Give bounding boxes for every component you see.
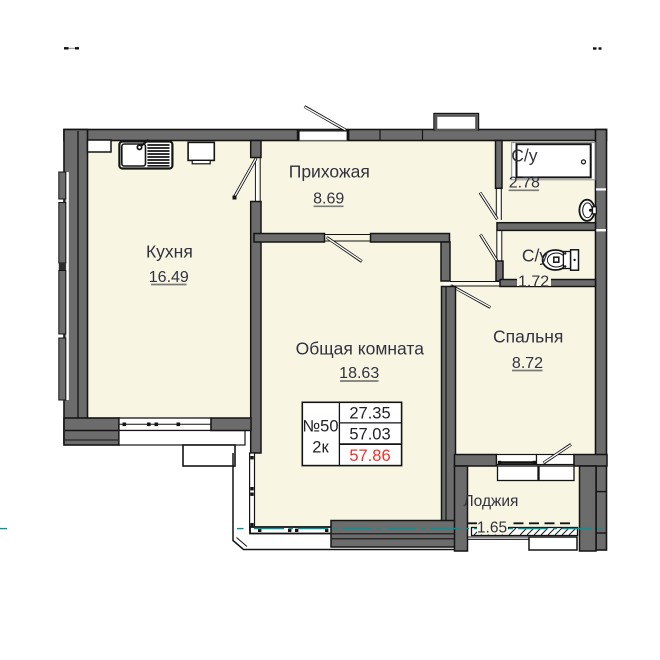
svg-text:18.63: 18.63 — [339, 365, 379, 382]
svg-text:2к: 2к — [312, 439, 329, 457]
svg-text:Прихожая: Прихожая — [289, 162, 370, 182]
svg-text:2.78: 2.78 — [509, 175, 540, 192]
svg-text:8.72: 8.72 — [512, 355, 543, 372]
svg-text:Кухня: Кухня — [146, 242, 193, 262]
svg-text:Спальня: Спальня — [493, 327, 563, 347]
svg-text:С/у: С/у — [522, 246, 549, 266]
svg-text:57.86: 57.86 — [349, 447, 390, 465]
svg-text:57.03: 57.03 — [349, 426, 390, 444]
svg-text:С/у: С/у — [511, 146, 538, 166]
svg-text:№50: №50 — [302, 418, 338, 436]
svg-text:8.69: 8.69 — [313, 191, 344, 208]
svg-text:Лоджия: Лоджия — [464, 493, 519, 510]
svg-text:16.49: 16.49 — [149, 269, 189, 286]
svg-text:1.72: 1.72 — [518, 274, 549, 291]
svg-text:Общая комната: Общая комната — [296, 338, 425, 358]
svg-text:27.35: 27.35 — [349, 405, 390, 423]
svg-text:1.65: 1.65 — [477, 520, 507, 537]
